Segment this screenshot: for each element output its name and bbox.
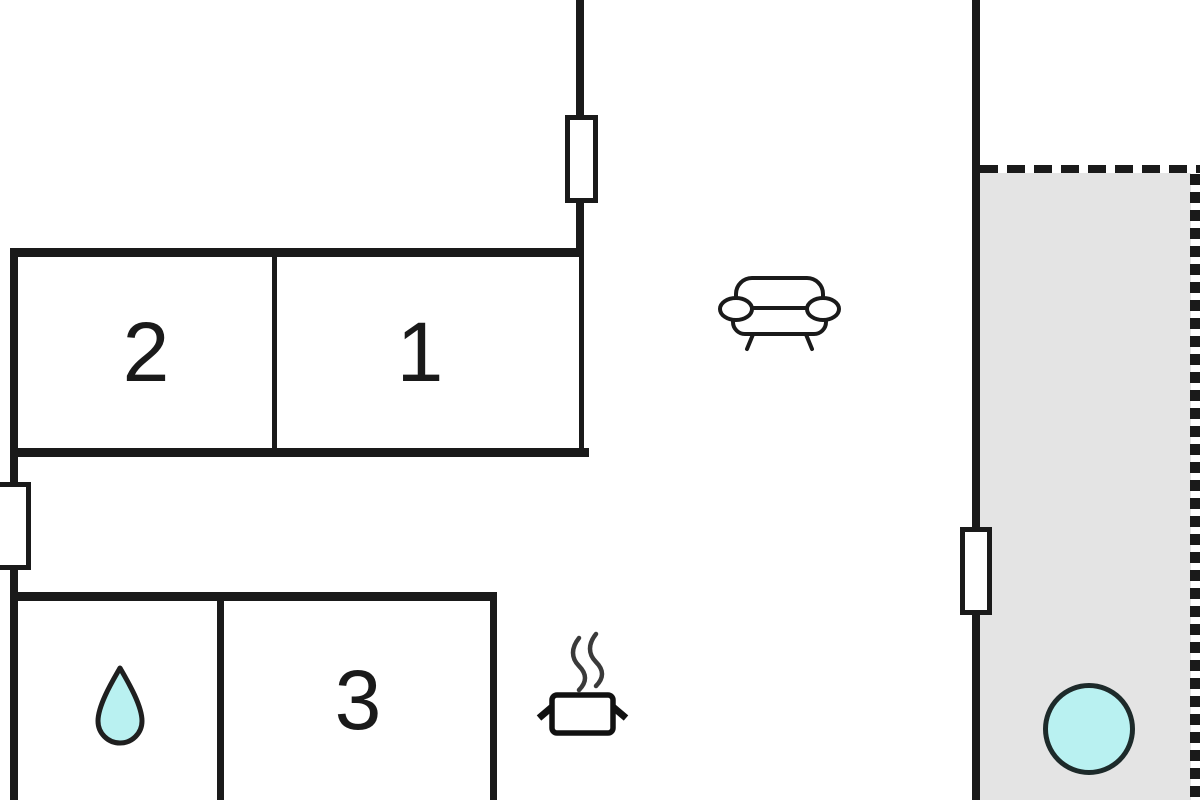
floor-plan: 2 1 3 <box>0 0 1200 800</box>
window-symbol-top <box>565 115 598 203</box>
wall-terrace-vertical <box>972 0 980 800</box>
wall-divider-bath-room3 <box>217 601 224 800</box>
hot-tub-circle-icon <box>1043 683 1135 775</box>
terrace-dashed-boundary-right <box>1190 168 1200 800</box>
room-3-label: 3 <box>335 658 382 742</box>
window-symbol-right <box>960 527 992 615</box>
wall-rooms-top <box>13 248 584 257</box>
window-symbol-left <box>0 482 31 570</box>
terrace-dashed-boundary-top <box>980 165 1200 173</box>
wall-room1-right <box>579 257 584 453</box>
wall-bath-room3-top <box>10 592 497 601</box>
wall-rooms-bottom <box>13 448 589 457</box>
wall-divider-room2-room1 <box>272 257 277 448</box>
room-2-label: 2 <box>123 310 170 394</box>
sofa-icon <box>712 272 847 357</box>
cooking-pot-icon <box>533 628 633 753</box>
water-drop-icon <box>93 664 147 748</box>
wall-room3-right <box>490 601 497 800</box>
room-1-label: 1 <box>397 310 444 394</box>
